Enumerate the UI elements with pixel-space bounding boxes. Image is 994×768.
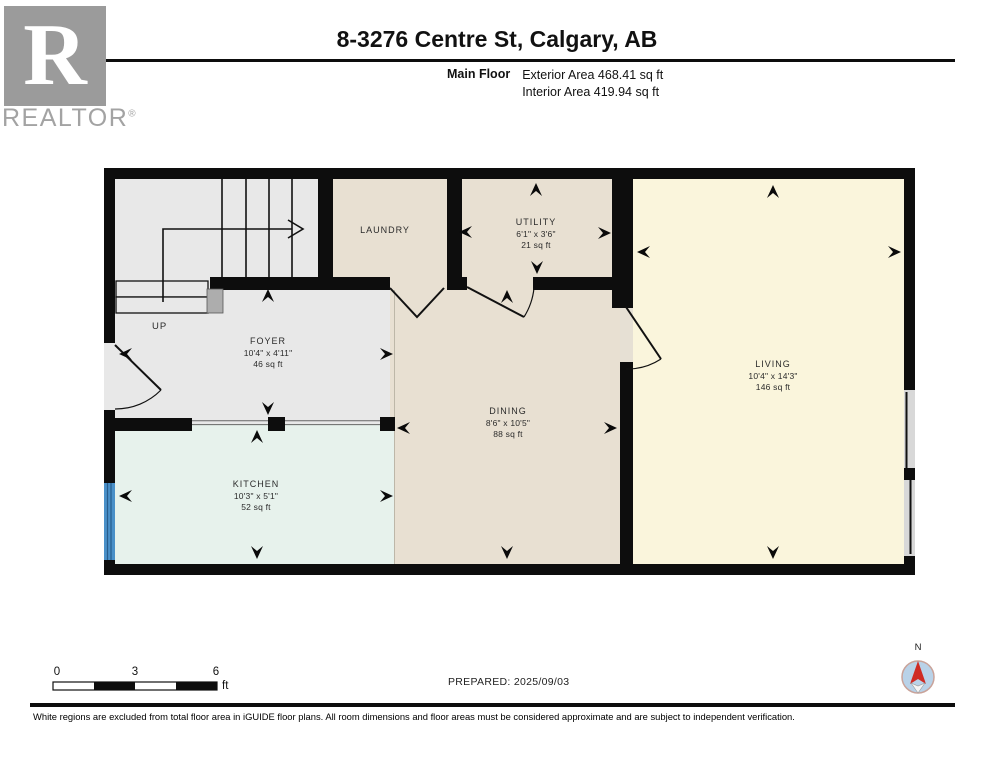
exterior-area: Exterior Area 468.41 sq ft — [522, 67, 663, 84]
room-label-dining: DINING 8'6" x 10'5" 88 sq ft — [486, 406, 530, 440]
room-name: UTILITY — [516, 217, 557, 229]
wall-foyer-kitchen — [104, 418, 192, 431]
room-area: 52 sq ft — [233, 502, 280, 513]
room-label-laundry: LAUNDRY — [360, 225, 410, 237]
railing-post-b — [380, 417, 395, 431]
room-area: 88 sq ft — [486, 429, 530, 440]
scale-tick-0: 0 — [54, 666, 60, 678]
room-label-living: LIVING 10'4" x 14'3" 146 sq ft — [748, 359, 797, 393]
wall-outer-left-a — [104, 168, 115, 343]
footer-disclaimer: White regions are excluded from total fl… — [33, 711, 973, 722]
registered-mark: ® — [128, 109, 137, 120]
floor-plan-svg — [0, 0, 994, 768]
room-name: FOYER — [244, 336, 293, 348]
realtor-brand-text: REALTOR® — [2, 104, 137, 133]
room-name: DINING — [486, 406, 530, 418]
room-name: LAUNDRY — [360, 225, 410, 237]
prepared-date: PREPARED: 2025/09/03 — [448, 676, 569, 688]
wall-outer-bottom — [104, 564, 915, 575]
interior-area: Interior Area 419.94 sq ft — [522, 84, 663, 101]
wall-mid-b — [447, 277, 467, 290]
room-area: 21 sq ft — [516, 240, 557, 251]
room-dims: 10'3" x 5'1" — [233, 491, 280, 502]
wall-mid-a — [210, 277, 390, 290]
wall-outer-right-b — [904, 556, 915, 575]
floor-label: Main Floor — [447, 67, 510, 101]
wall-outer-left-c — [104, 560, 115, 575]
wall-mid-c — [533, 277, 633, 290]
room-label-utility: UTILITY 6'1" x 3'6" 21 sq ft — [516, 217, 557, 251]
room-dims: 10'4" x 4'11" — [244, 348, 293, 359]
living-sliding-door — [904, 390, 915, 556]
wall-dining-living — [620, 362, 633, 564]
room-dims: 6'1" x 3'6" — [516, 229, 557, 240]
stairs-up-label: UP — [152, 321, 167, 332]
room-area: 146 sq ft — [748, 382, 797, 393]
room-label-foyer: FOYER 10'4" x 4'11" 46 sq ft — [244, 336, 293, 370]
room-dims: 8'6" x 10'5" — [486, 418, 530, 429]
railing-post-a — [268, 417, 285, 431]
wall-laundry-utility — [447, 179, 462, 290]
page-title: 8-3276 Centre St, Calgary, AB — [0, 26, 994, 53]
wall-outer-top — [104, 168, 915, 179]
realtor-logo: R — [4, 6, 106, 106]
compass-rose — [902, 661, 934, 693]
entry-door-gap — [104, 343, 115, 410]
room-name: LIVING — [748, 359, 797, 371]
room-label-kitchen: KITCHEN 10'3" x 5'1" 52 sq ft — [233, 479, 280, 513]
brand-name: REALTOR — [2, 104, 128, 132]
wall-stairs-laundry — [318, 179, 333, 290]
footer-rule — [30, 703, 955, 707]
room-area: 46 sq ft — [244, 359, 293, 370]
compass-north-label: N — [915, 642, 922, 653]
wall-outer-right-a — [904, 168, 915, 390]
scale-unit: ft — [222, 680, 228, 692]
header-rule — [37, 59, 955, 62]
floor-info: Main Floor Exterior Area 468.41 sq ft In… — [447, 67, 663, 101]
scale-tick-6: 6 — [213, 666, 219, 678]
room-dims: 10'4" x 14'3" — [748, 371, 797, 382]
scale-tick-3: 3 — [132, 666, 138, 678]
kitchen-window — [104, 483, 115, 560]
scale-bar — [53, 682, 217, 690]
room-name: KITCHEN — [233, 479, 280, 491]
